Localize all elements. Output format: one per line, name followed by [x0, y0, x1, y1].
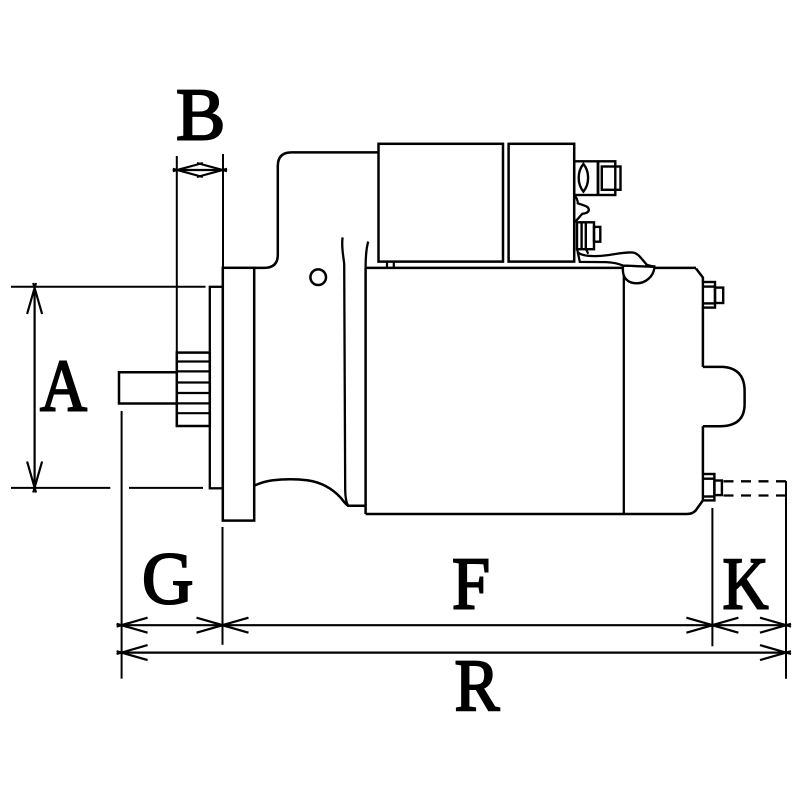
svg-text:A: A: [40, 346, 87, 428]
svg-text:R: R: [455, 646, 501, 728]
svg-text:B: B: [176, 75, 225, 157]
svg-text:G: G: [142, 539, 194, 621]
svg-text:F: F: [452, 544, 490, 626]
svg-text:K: K: [723, 544, 769, 626]
